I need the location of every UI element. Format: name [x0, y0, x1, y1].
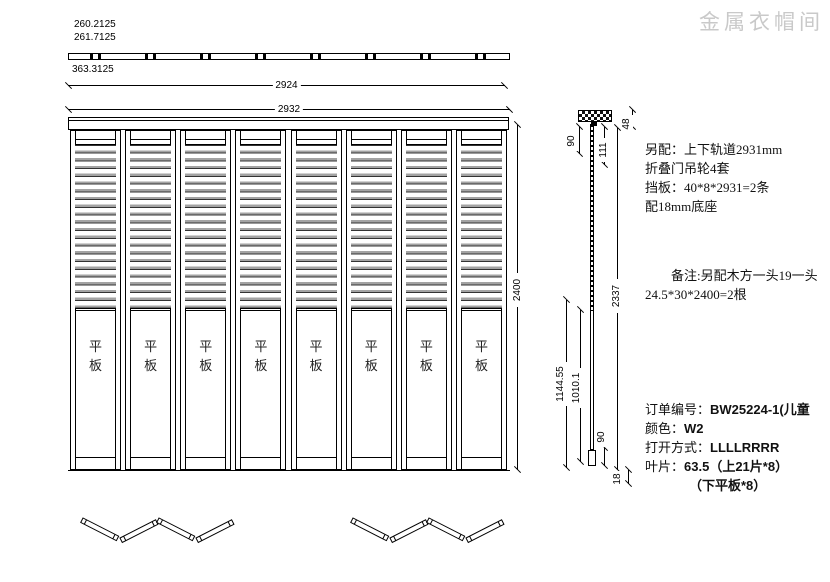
order-number-value: BW25224-1(儿童: [710, 402, 810, 417]
louver-slats: [75, 144, 116, 309]
louver-slats: [130, 144, 171, 309]
color-label: 颜色：: [645, 421, 684, 436]
dim-2337: 2337: [611, 279, 623, 313]
door-panel: 平板: [180, 130, 231, 470]
fold-plan-right: [350, 514, 505, 548]
louver-slats: [406, 144, 447, 309]
panel-label: 平板: [474, 337, 489, 375]
dim-line-2932: 2932: [68, 109, 510, 110]
dim-260-2125: 260.2125: [74, 19, 116, 30]
blade-row: 叶片：63.5（上21片*8）: [645, 457, 810, 476]
louver-slats: [351, 144, 392, 309]
note-line: 配18mm底座: [645, 197, 782, 216]
color-value: W2: [684, 421, 704, 436]
color-row: 颜色：W2: [645, 419, 810, 438]
note-line: 24.5*30*2400=2根: [645, 285, 818, 304]
blade-value: 63.5（上21片*8）: [684, 459, 788, 474]
order-info: 订单编号：BW25224-1(儿童 颜色：W2 打开方式：LLLLRRRR 叶片…: [645, 400, 810, 495]
dim-363-3125: 363.3125: [72, 64, 114, 75]
note-line: 折叠门吊轮4套: [645, 159, 782, 178]
watermark: 金属衣帽间: [699, 6, 824, 36]
note-remark: 备注:另配木方一头19一头 24.5*30*2400=2根: [645, 266, 818, 304]
order-number-label: 订单编号：: [645, 402, 710, 417]
note-accessories: 另配：上下轨道2931mm 折叠门吊轮4套 挡板：40*8*2931=2条 配1…: [645, 140, 782, 216]
dim-90-top: 90: [566, 131, 578, 151]
louver-slats: [185, 144, 226, 309]
dim-2924: 2924: [272, 80, 300, 91]
base-line: [68, 470, 510, 471]
dim-111: 111: [598, 138, 610, 162]
door-panel: 平板: [70, 130, 121, 470]
open-mode-label: 打开方式：: [645, 440, 710, 455]
bottom-rail-section: [588, 450, 596, 466]
note-line: 备注:另配木方一头19一头: [645, 266, 818, 285]
panel-label: 平板: [419, 337, 434, 375]
panel-label: 平板: [364, 337, 379, 375]
panel-label: 平板: [88, 337, 103, 375]
blade-row2: （下平板*8）: [645, 476, 810, 495]
top-track-bar: [68, 53, 510, 60]
blade-label: 叶片：: [645, 459, 684, 474]
panel-label: 平板: [198, 337, 213, 375]
open-mode-row: 打开方式：LLLLRRRR: [645, 438, 810, 457]
panel-label: 平板: [143, 337, 158, 375]
dim-90-bottom: 90: [596, 427, 608, 447]
louver-slats: [461, 144, 502, 309]
dim-line-90-top: [579, 127, 580, 154]
elevation-panels: 平板 平板 平板 平板 平板 平板 平板 平板: [70, 130, 507, 470]
louver-slats: [296, 144, 337, 309]
door-panel: 平板: [235, 130, 286, 470]
header-rail: [68, 117, 509, 130]
door-panel: 平板: [346, 130, 397, 470]
open-mode-value: LLLLRRRR: [710, 440, 779, 455]
dim-1010-1: 1010.1: [571, 368, 583, 408]
note-line: 另配：上下轨道2931mm: [645, 140, 782, 159]
door-panel: 平板: [456, 130, 507, 470]
fold-plan-left: [80, 514, 235, 548]
note-line: 挡板：40*8*2931=2条: [645, 178, 782, 197]
blade-value2: （下平板*8）: [689, 478, 766, 493]
dim-2932: 2932: [275, 104, 303, 115]
panel-label: 平板: [309, 337, 324, 375]
panel-label: 平板: [253, 337, 268, 375]
door-panel: 平板: [125, 130, 176, 470]
dim-18: 18: [612, 471, 624, 487]
dim-2400: 2400: [512, 273, 524, 307]
dim-261-7125: 261.7125: [74, 32, 116, 43]
dim-line-90-bottom: [604, 448, 605, 466]
door-panel: 平板: [291, 130, 342, 470]
dim-line-18: [628, 470, 629, 484]
louver-slats: [240, 144, 281, 309]
dim-line-2924: 2924: [68, 85, 505, 86]
door-panel: 平板: [401, 130, 452, 470]
drawing-canvas: 金属衣帽间 260.2125 261.7125 363.3125 2924 29…: [0, 0, 830, 582]
dim-1144-55: 1144.55: [555, 362, 567, 406]
order-number-row: 订单编号：BW25224-1(儿童: [645, 400, 810, 419]
door-section-blade: [590, 124, 594, 450]
dim-48: 48: [621, 115, 633, 133]
